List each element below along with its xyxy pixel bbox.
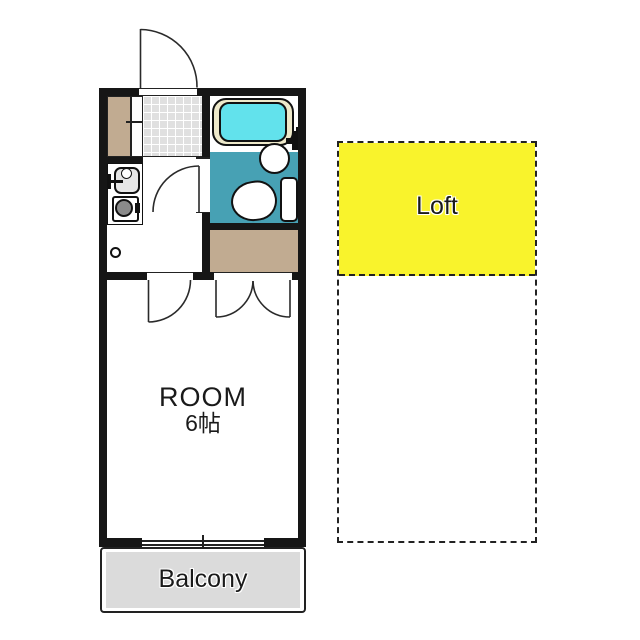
bathtub-water <box>219 102 287 142</box>
wall-bath-lower <box>202 213 210 272</box>
stove-burner <box>115 199 133 217</box>
floor-drain <box>110 247 121 258</box>
room-area-label: 6帖 <box>123 411 283 436</box>
wall-room-top-a <box>99 272 147 280</box>
wall-bath-upper <box>202 96 210 158</box>
bath-door-jamb-bottom <box>196 212 210 214</box>
closet-door-left-swing <box>216 281 253 317</box>
entrance-tile-area <box>143 96 202 157</box>
wall-bottom-left <box>99 538 142 547</box>
floor-plan: Loft <box>0 0 640 640</box>
stove-handle <box>135 203 140 213</box>
wall-under-entry-closet <box>107 157 143 163</box>
closet-door-right-swing <box>253 281 290 317</box>
bathroom-door-swing <box>153 166 199 212</box>
closet-door <box>131 96 143 157</box>
wall-right <box>298 88 306 547</box>
room-label: ROOM <box>123 383 283 413</box>
entrance-door-swing <box>141 30 198 88</box>
wall-bath-bottom <box>202 223 298 230</box>
wall-room-top-c <box>292 272 306 280</box>
room-door-swing <box>149 280 191 322</box>
room-door-opening <box>147 272 193 280</box>
wall-top-right <box>197 88 306 96</box>
door-swings <box>0 0 640 640</box>
loft-outline: Loft <box>337 141 537 543</box>
kitchen-faucet-spout <box>110 180 123 183</box>
bath-door-jamb-top <box>196 157 210 159</box>
closet-door-opening <box>214 272 292 280</box>
entrance-threshold <box>139 88 197 96</box>
closet-room <box>210 230 298 272</box>
closet-entrance <box>107 96 131 157</box>
bath-door-opening <box>202 158 210 213</box>
wall-room-top-b <box>193 272 214 280</box>
wall-left <box>99 88 107 547</box>
loft-label: Loft <box>339 193 535 221</box>
shower-mixer-knob <box>286 138 293 144</box>
loft-area: Loft <box>339 143 535 276</box>
toilet-tank <box>280 177 298 222</box>
closet-door-tick <box>126 121 143 123</box>
wash-basin <box>259 143 290 174</box>
balcony-label: Balcony <box>106 566 300 594</box>
wall-bottom-right <box>264 538 306 547</box>
kitchen-sink-tap-base <box>121 168 132 179</box>
